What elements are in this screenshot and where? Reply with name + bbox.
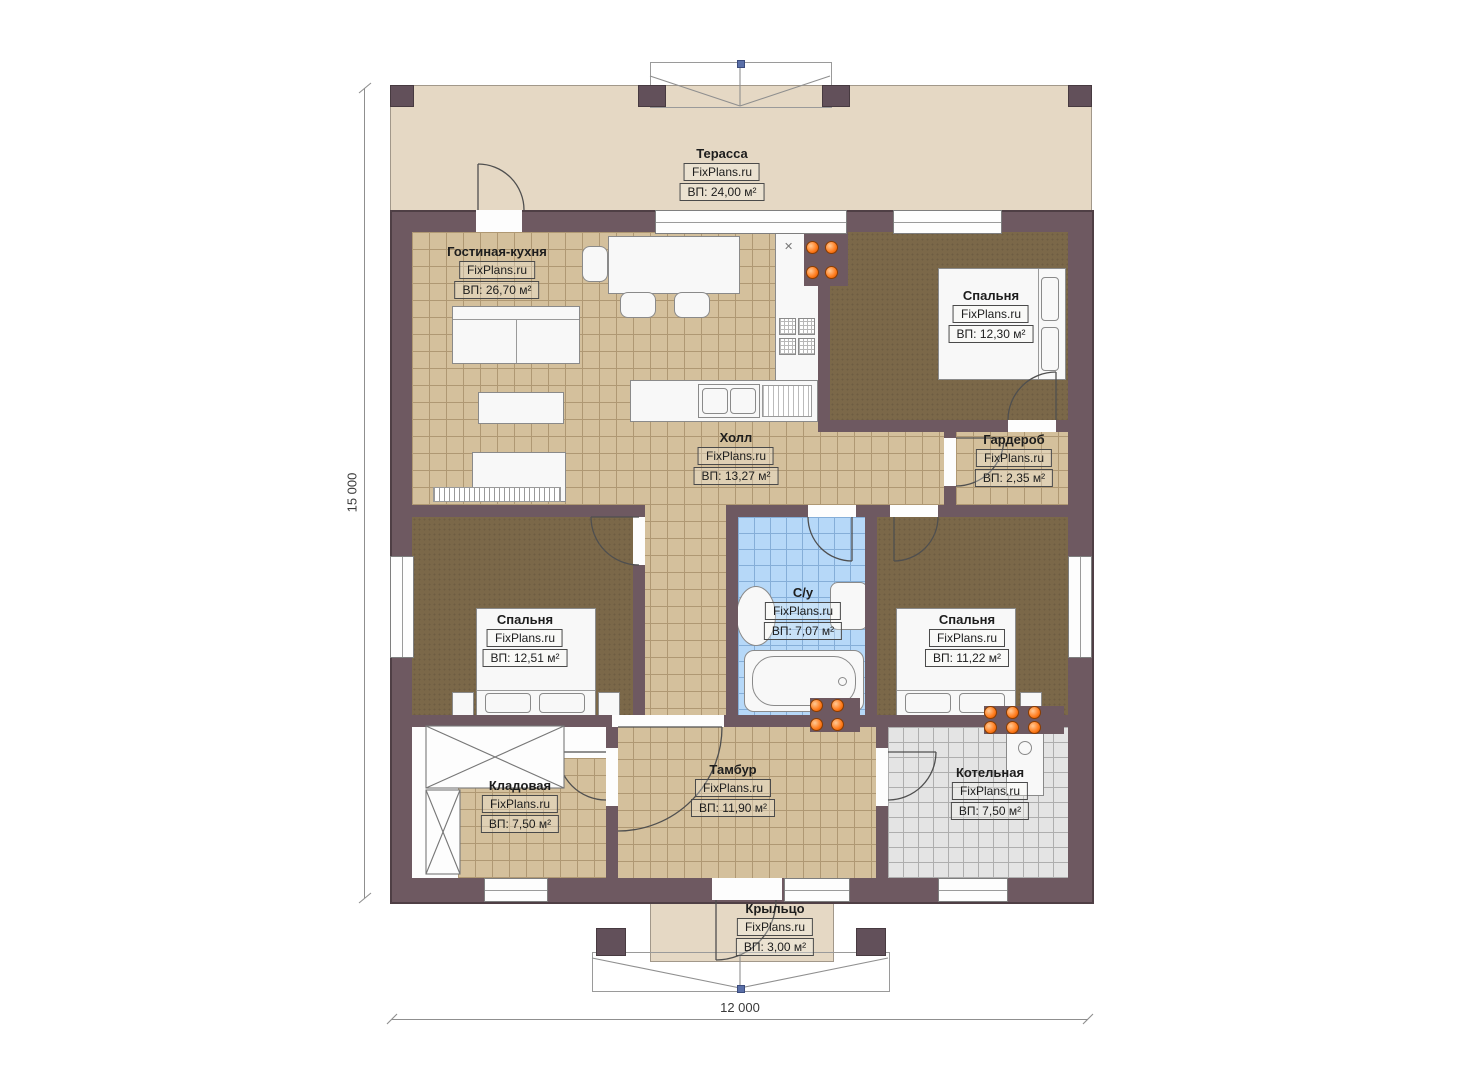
- wall-segment: [412, 505, 645, 517]
- door-opening: [944, 438, 956, 486]
- burner-icon: [798, 318, 815, 335]
- room-label-boiler: Котельная FixPlans.ru ВП: 7,50 м²: [951, 765, 1029, 820]
- radiator: [810, 698, 860, 732]
- dining-table: [608, 236, 740, 294]
- radiator-dot-icon: [831, 718, 844, 731]
- room-name: Терасса: [696, 146, 748, 161]
- dimension-line-vertical: [364, 88, 365, 898]
- window: [1068, 556, 1092, 658]
- radiator-dot-icon: [1006, 721, 1019, 734]
- room-area: ВП: 26,70 м²: [455, 281, 540, 299]
- room-name: Крыльцо: [745, 901, 804, 916]
- radiator-dot-icon: [1028, 706, 1041, 719]
- nightstand: [598, 692, 620, 716]
- entry-canopy-top: [650, 62, 832, 108]
- radiator-dot-icon: [984, 706, 997, 719]
- room-name: Кладовая: [489, 778, 551, 793]
- sofa: [452, 306, 580, 364]
- dimension-label-height: 15 000: [345, 443, 360, 543]
- window: [390, 556, 414, 658]
- porch-post: [856, 928, 886, 956]
- room-area: ВП: 7,50 м²: [951, 802, 1029, 820]
- radiator-dot-icon: [984, 721, 997, 734]
- radiator-dot-icon: [1028, 721, 1041, 734]
- wall-segment: [412, 715, 1068, 727]
- window: [484, 878, 548, 902]
- room-name: С/у: [793, 585, 813, 600]
- radiator-dot-icon: [810, 718, 823, 731]
- room-area: ВП: 13,27 м²: [694, 467, 779, 485]
- room-area: ВП: 3,00 м²: [736, 938, 814, 956]
- porch-post: [596, 928, 626, 956]
- room-brand: FixPlans.ru: [487, 629, 563, 647]
- wall-segment: [726, 517, 738, 715]
- room-brand: FixPlans.ru: [953, 305, 1029, 323]
- room-brand: FixPlans.ru: [929, 629, 1005, 647]
- chair: [620, 292, 656, 318]
- room-label-living-kitchen: Гостиная-кухня FixPlans.ru ВП: 26,70 м²: [447, 244, 547, 299]
- room-brand: FixPlans.ru: [765, 602, 841, 620]
- room-name: Котельная: [956, 765, 1024, 780]
- room-label-bathroom: С/у FixPlans.ru ВП: 7,07 м²: [764, 585, 842, 640]
- room-name: Спальня: [497, 612, 553, 627]
- burner-icon: [779, 338, 796, 355]
- room-area: ВП: 7,07 м²: [764, 622, 842, 640]
- room-label-porch: Крыльцо FixPlans.ru ВП: 3,00 м²: [736, 901, 814, 956]
- burner-icon: [779, 318, 796, 335]
- door-opening: [1008, 420, 1056, 432]
- room-area: ВП: 12,30 м²: [949, 325, 1034, 343]
- chair: [582, 246, 608, 282]
- room-label-bedroom-1: Спальня FixPlans.ru ВП: 12,30 м²: [949, 288, 1034, 343]
- door-opening: [890, 505, 938, 517]
- canopy-ridge-marker-bottom: [737, 985, 745, 993]
- radiator-dot-icon: [825, 241, 838, 254]
- room-area: ВП: 12,51 м²: [483, 649, 568, 667]
- room-name: Спальня: [963, 288, 1019, 303]
- room-label-terrace: Терасса FixPlans.ru ВП: 24,00 м²: [680, 146, 765, 201]
- room-label-bedroom-2: Спальня FixPlans.ru ВП: 12,51 м²: [483, 612, 568, 667]
- room-name: Гостиная-кухня: [447, 244, 547, 259]
- radiator-dot-icon: [806, 266, 819, 279]
- room-area: ВП: 11,22 м²: [925, 649, 1009, 667]
- room-name: Тамбур: [709, 762, 756, 777]
- burner-icon: [798, 338, 815, 355]
- window: [655, 210, 847, 234]
- room-brand: FixPlans.ru: [698, 447, 774, 465]
- terrace-post: [1068, 85, 1092, 107]
- door-opening: [606, 748, 618, 806]
- room-label-vestibule: Тамбур FixPlans.ru ВП: 11,90 м²: [691, 762, 775, 817]
- vent-symbol: ✕: [784, 240, 793, 253]
- room-brand: FixPlans.ru: [695, 779, 771, 797]
- room-area: ВП: 2,35 м²: [975, 469, 1053, 487]
- room-brand: FixPlans.ru: [952, 782, 1028, 800]
- nightstand: [452, 692, 474, 716]
- room-brand: FixPlans.ru: [737, 918, 813, 936]
- floor-plan-canvas: 15 000 12 000: [0, 0, 1474, 1080]
- stove: [779, 318, 817, 356]
- room-label-bedroom-3: Спальня FixPlans.ru ВП: 11,22 м²: [925, 612, 1009, 667]
- room-brand: FixPlans.ru: [684, 163, 760, 181]
- room-area: ВП: 24,00 м²: [680, 183, 765, 201]
- room-area: ВП: 7,50 м²: [481, 815, 559, 833]
- terrace-post: [638, 85, 666, 107]
- room-label-hall: Холл FixPlans.ru ВП: 13,27 м²: [694, 430, 779, 485]
- hall-radiator-grille: [433, 487, 561, 502]
- radiator-dot-icon: [806, 241, 819, 254]
- chair: [674, 292, 710, 318]
- room-name: Холл: [720, 430, 753, 445]
- radiator-dot-icon: [825, 266, 838, 279]
- door-opening: [808, 505, 856, 517]
- radiator: [984, 706, 1064, 734]
- stove-burners-hot: [806, 236, 846, 284]
- front-door-opening: [712, 878, 782, 900]
- door-opening: [612, 715, 724, 727]
- kitchen-sink: [698, 384, 760, 418]
- room-label-wardrobe: Гардероб FixPlans.ru ВП: 2,35 м²: [975, 432, 1053, 487]
- window: [938, 878, 1008, 902]
- canopy-ridge-marker-top: [737, 60, 745, 68]
- terrace-post: [390, 85, 414, 107]
- radiator-dot-icon: [831, 699, 844, 712]
- room-name: Спальня: [939, 612, 995, 627]
- terrace-door-opening: [476, 210, 522, 232]
- room-area: ВП: 11,90 м²: [691, 799, 775, 817]
- door-opening: [633, 517, 645, 565]
- room-brand: FixPlans.ru: [976, 449, 1052, 467]
- room-brand: FixPlans.ru: [459, 261, 535, 279]
- door-opening: [876, 748, 888, 806]
- dimension-label-width: 12 000: [690, 1000, 790, 1015]
- room-name: Гардероб: [983, 432, 1044, 447]
- room-brand: FixPlans.ru: [482, 795, 558, 813]
- radiator-dot-icon: [1006, 706, 1019, 719]
- dimension-line-horizontal: [392, 1019, 1088, 1020]
- coffee-table: [478, 392, 564, 424]
- terrace-post: [822, 85, 850, 107]
- dish-rack: [762, 385, 812, 417]
- radiator-dot-icon: [810, 699, 823, 712]
- room-label-storage: Кладовая FixPlans.ru ВП: 7,50 м²: [481, 778, 559, 833]
- wall-segment: [865, 505, 877, 715]
- entry-sidelight-window: [784, 878, 850, 902]
- window: [893, 210, 1002, 234]
